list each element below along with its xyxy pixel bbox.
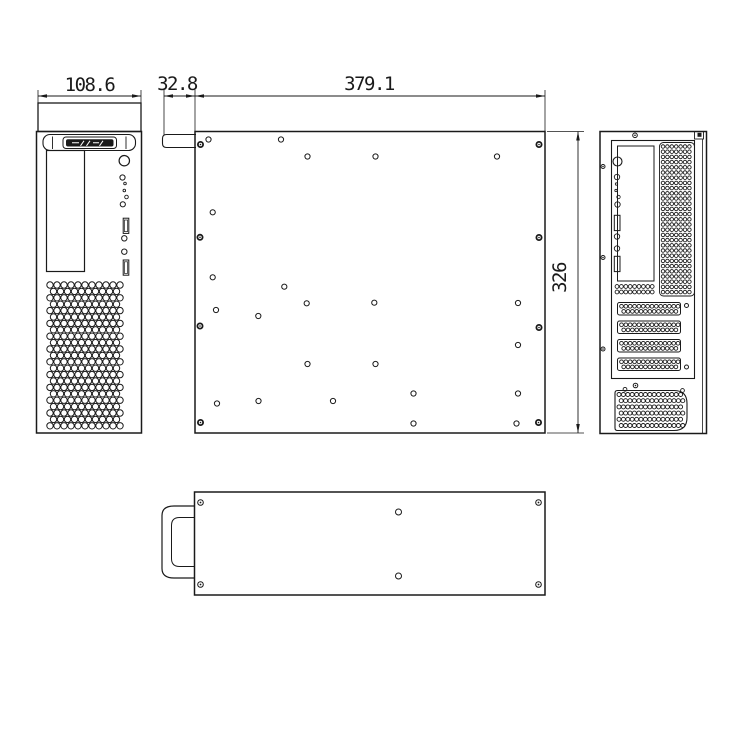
carry-handle-inner [172, 518, 195, 567]
carry-handle-outer[interactable] [162, 506, 195, 578]
rear-corner-latch [695, 132, 704, 140]
power-button[interactable] [119, 156, 129, 166]
arrowhead [38, 94, 47, 98]
rear-io-shield [618, 146, 655, 281]
side-view [163, 132, 546, 434]
chassis-technical-drawing: 108.6 32.8 379.1 326 [0, 0, 750, 750]
rear-vent-grid [661, 145, 691, 294]
front-audio-jack[interactable] [122, 236, 127, 241]
top-corner-screws [198, 500, 542, 588]
small-connector [615, 189, 617, 191]
top-outline [195, 492, 546, 595]
top-mount-hole [396, 509, 402, 515]
dim-text-body-length: 379.1 [344, 73, 395, 95]
dim-text-height: 326 [549, 262, 571, 293]
front-usb-port[interactable] [123, 218, 129, 233]
arrowhead [576, 132, 580, 141]
dimension-annotations: 108.6 32.8 379.1 326 [38, 73, 584, 433]
front-led-indicators [120, 175, 128, 207]
arrowhead [576, 424, 580, 433]
rear-small-vent-block [615, 285, 654, 294]
front-usb-port[interactable] [123, 260, 129, 275]
side-handle-tab [163, 135, 197, 148]
front-view [37, 103, 142, 433]
arrowhead [536, 94, 545, 98]
top-mount-hole [396, 573, 402, 579]
rear-view [600, 132, 707, 434]
front-vent-grid [47, 282, 123, 429]
rear-psu-vent [615, 387, 687, 430]
psu-screw [681, 389, 685, 393]
side-panel-holes [197, 137, 541, 426]
rear-case-screws [601, 133, 638, 388]
front-drive-bay [47, 151, 85, 272]
dim-text-front-width: 108.6 [65, 74, 116, 96]
expansion-slot-covers [618, 303, 681, 371]
arrowhead [132, 94, 141, 98]
slot-screw [685, 304, 689, 308]
drawing-svg: 108.6 32.8 379.1 326 [0, 0, 750, 750]
front-top-cap [38, 103, 141, 132]
side-panel-outline [195, 132, 545, 434]
top-view [162, 492, 545, 595]
dim-text-handle-depth: 32.8 [157, 73, 198, 95]
slot-screw [685, 365, 689, 369]
front-audio-jack[interactable] [122, 249, 127, 254]
small-connector [615, 183, 617, 185]
